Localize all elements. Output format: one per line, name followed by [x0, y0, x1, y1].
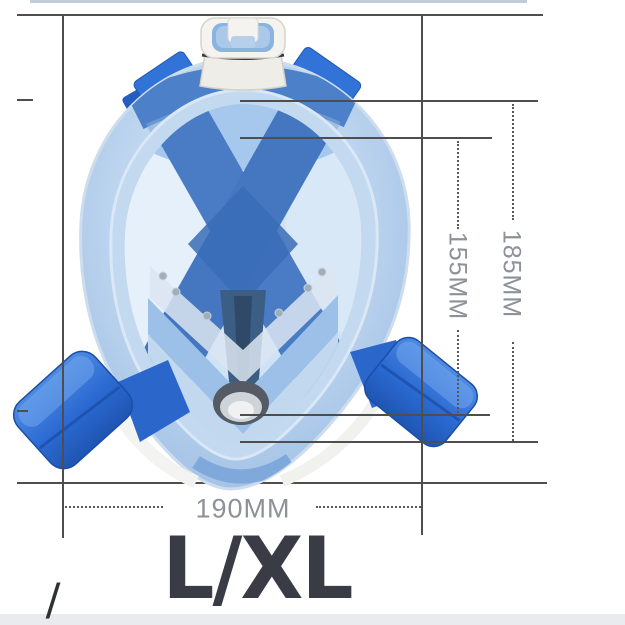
- product-dimension-image: 155MM 185MM 190MM L/XL /: [0, 0, 625, 625]
- leader-line-155-bottom: [240, 414, 490, 416]
- left-edge-tick-lower: [17, 410, 28, 412]
- leader-line-155-top: [240, 137, 492, 139]
- leader-line-185-top: [240, 100, 538, 102]
- top-edge-artifact: [30, 0, 527, 3]
- left-edge-tick-upper: [17, 99, 33, 101]
- snorkel-mount: [200, 18, 286, 90]
- dim-155-dotted-lower: [457, 330, 459, 413]
- size-label: L/XL: [162, 519, 351, 619]
- dim-185-dotted-lower: [512, 342, 514, 441]
- dim-190-dotted-left: [65, 506, 163, 508]
- top-extent-line: [17, 14, 543, 16]
- dim-155-dotted-upper: [457, 141, 459, 229]
- slash-mark: /: [46, 575, 61, 625]
- label-155mm: 155MM: [443, 232, 472, 320]
- purge-valve: [213, 381, 269, 425]
- label-185mm: 185MM: [497, 230, 526, 318]
- dim-185-dotted-upper: [512, 104, 514, 220]
- left-extent-line: [62, 14, 64, 538]
- leader-line-185-bottom: [240, 441, 538, 443]
- right-extent-line: [421, 14, 423, 535]
- right-buckle: [350, 331, 484, 453]
- dim-190-dotted-right: [316, 506, 421, 508]
